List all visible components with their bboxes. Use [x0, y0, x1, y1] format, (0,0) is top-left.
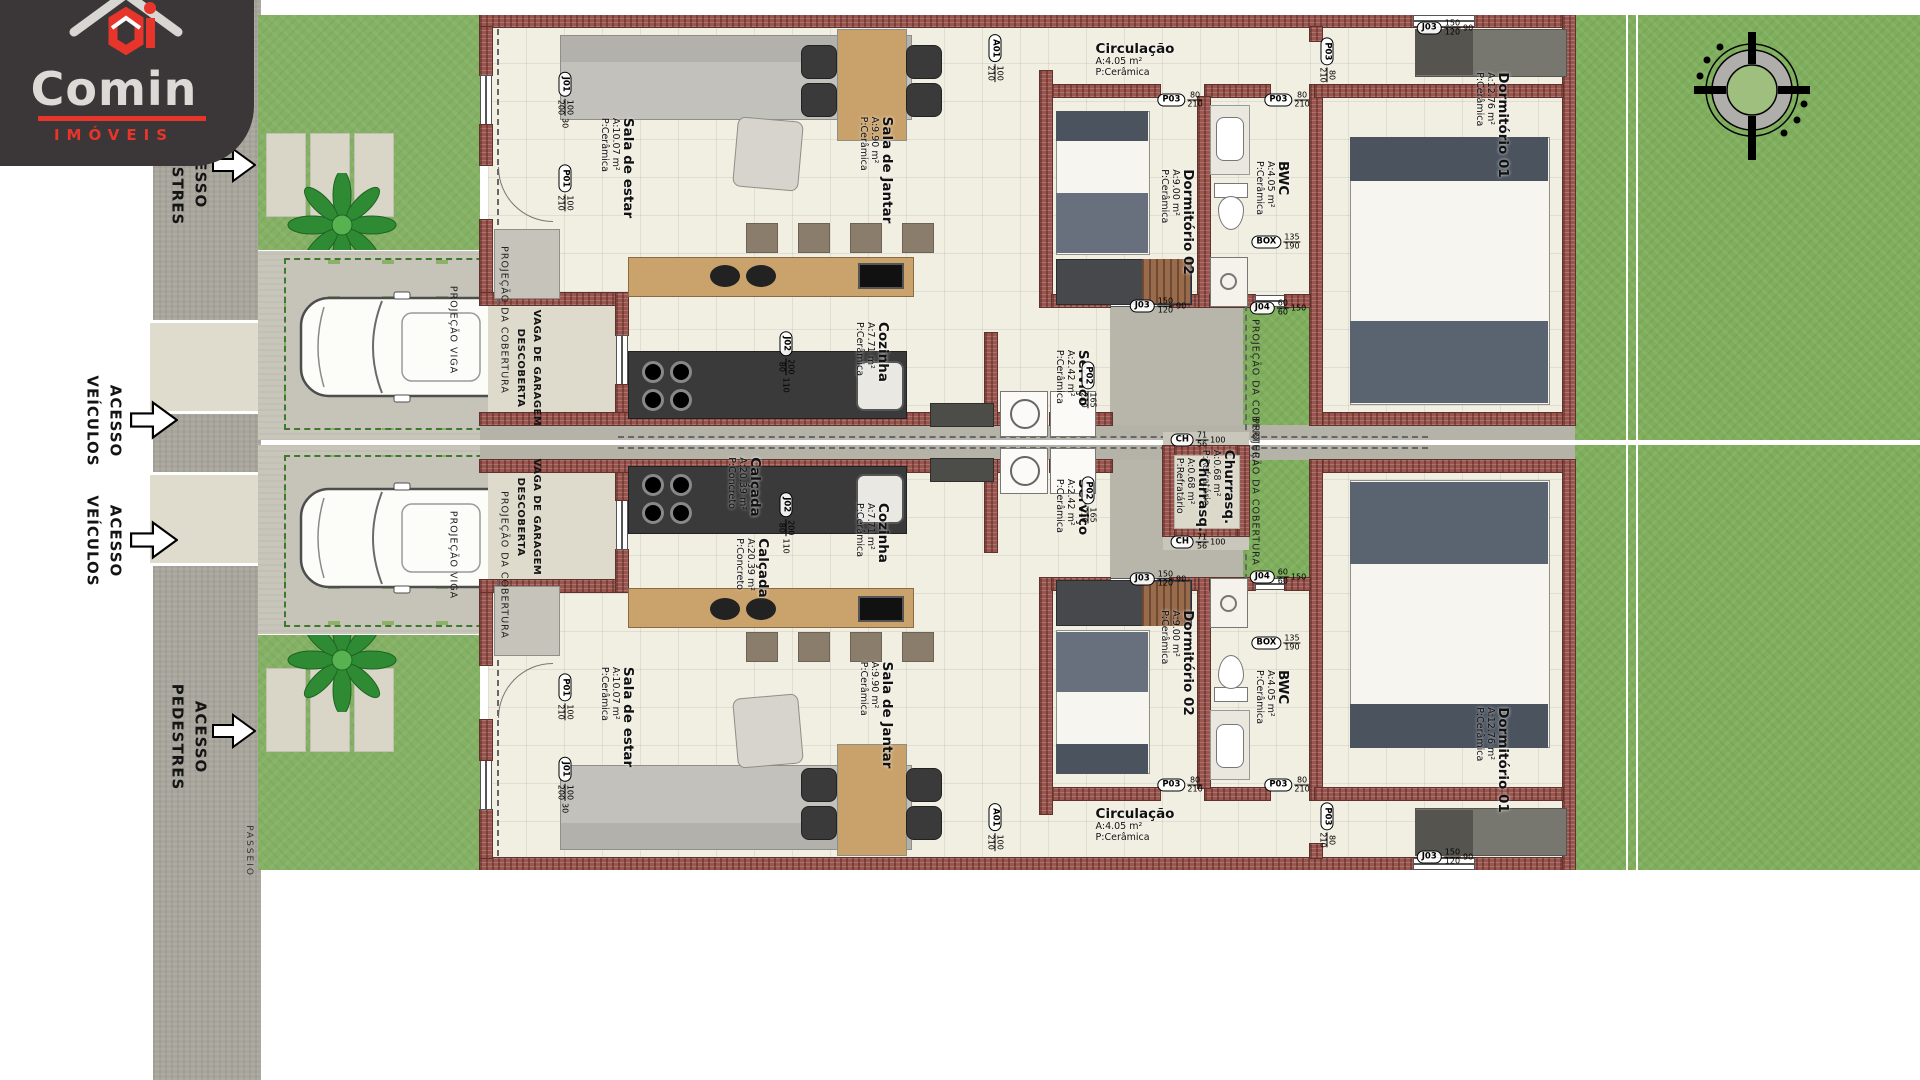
room-label-dormitorio-02-u1: Dormitório 02A:9.00 m²P:Cerâmica — [1159, 169, 1195, 275]
cooktop-burner — [670, 389, 692, 411]
wall — [1040, 71, 1052, 307]
window-j01 — [480, 760, 492, 810]
marker-j03-u2-21: J0315012090 — [1130, 571, 1186, 588]
marker-p03-u1-6: P0380210 — [1264, 92, 1309, 109]
label-vaga-garagem-2: VAGA DE GARAGEM DESCOBERTA — [512, 459, 544, 576]
wall — [1310, 460, 1575, 472]
marker-ch-u1-12: CH7156100 — [1171, 432, 1226, 449]
floor-plan-canvas: N Comin IMÓVEIS PASSEIOPASSEIOACESSO PED… — [0, 0, 1920, 1080]
room-label-calcada-u1: CalçadaA:20.39 m²P:Concreto — [726, 457, 762, 517]
wall — [480, 858, 1575, 870]
wall — [1205, 788, 1270, 800]
bathroom-sink — [1216, 724, 1244, 768]
bed-blanket — [1056, 193, 1148, 253]
marker-j04-u1-10: J046060150 — [1250, 300, 1306, 317]
wall — [1198, 578, 1210, 788]
armchair — [732, 693, 804, 768]
cooktop-burner — [670, 361, 692, 383]
cooktop-burner — [670, 502, 692, 524]
cooktop-burner — [670, 474, 692, 496]
window-j01 — [480, 75, 492, 125]
marker-box-u2-24: BOX135190 — [1251, 635, 1300, 652]
marker-p03-u2-20: P0380210 — [1319, 802, 1336, 847]
counter-sink — [710, 265, 740, 287]
marker-p01-u2-14: P01100210 — [557, 673, 574, 720]
bed-pillows — [1056, 111, 1148, 141]
bathroom-sink — [1216, 117, 1244, 161]
logo-house-icon — [0, 0, 254, 70]
label-projecao-cobertura-frente-2: PROJEÇÃO DA COBERTURA — [497, 491, 510, 639]
stool — [746, 632, 778, 662]
marker-j01-u1-0: J0110020030 — [557, 72, 574, 128]
marker-a01-u1-3: A01100210 — [987, 34, 1004, 82]
marker-box-u1-11: BOX135190 — [1251, 234, 1300, 251]
wall — [1315, 788, 1563, 800]
logo-underline — [38, 116, 206, 121]
dining-chair — [906, 45, 942, 79]
lot-boundary-line — [1626, 445, 1638, 870]
marker-j01-u2-13: J0110020030 — [557, 757, 574, 813]
marker-p03-u1-5: P0380210 — [1157, 92, 1202, 109]
counter-sink — [746, 598, 776, 620]
dining-chair — [906, 768, 942, 802]
room-label-sala-jantar-u2: Sala de JantarA:9.90 m²P:Cerâmica — [858, 662, 894, 769]
marker-ch-u2-25: CH7156100 — [1171, 534, 1226, 551]
cooktop-burner — [642, 389, 664, 411]
counter-appliance — [858, 263, 904, 289]
room-label-circulacao-u2: CirculaçãoA:4.05 m²P:Cerâmica — [1096, 807, 1175, 843]
dining-chair — [801, 83, 837, 117]
stool — [798, 223, 830, 253]
marker-j03-u1-9: J0315012090 — [1417, 20, 1473, 37]
arrow-right-icon — [212, 712, 256, 750]
north-compass-icon — [1692, 30, 1812, 180]
room-label-sala-estar-u1: Sala de estarA:10.07 m²P:Cerâmica — [599, 118, 635, 218]
wall — [1052, 788, 1160, 800]
wall — [480, 720, 492, 760]
covered-patio — [1100, 307, 1243, 440]
wall — [1310, 85, 1322, 425]
wall — [1315, 85, 1563, 97]
bed-blanket — [1350, 482, 1548, 564]
room-label-churrasqueira-u2: Churrasq.A:0.68 m²P:Refratário — [1174, 458, 1210, 532]
washer-drum — [1010, 456, 1040, 486]
wall — [480, 125, 492, 165]
marker-p03-u2-19: P0380210 — [1264, 777, 1309, 794]
stool — [850, 632, 882, 662]
wall — [480, 810, 492, 858]
toilet-tank — [1214, 687, 1248, 702]
bed-pillows — [1350, 137, 1548, 181]
marker-j02-u1-2: J0220080110 — [778, 331, 795, 393]
room-label-circulacao-u1: CirculaçãoA:4.05 m²P:Cerâmica — [1096, 42, 1175, 78]
armchair — [732, 116, 804, 191]
cooktop-burner — [642, 361, 664, 383]
label-acesso-veiculos-bottom: ACESSO VEÍCULOS — [82, 495, 127, 586]
logo-brand-text: Comin — [0, 66, 254, 112]
wall — [480, 15, 1575, 27]
wall — [480, 580, 492, 665]
room-label-dormitorio-01-u2: Dormitório 01A:12.76 m²P:Cerâmica — [1474, 707, 1510, 813]
stool — [798, 632, 830, 662]
stool — [746, 223, 778, 253]
label-projecao-cobertura-fundos-2: PROJEÇÃO DA COBERTURA — [1248, 418, 1261, 566]
grill-counter — [930, 458, 994, 482]
wall — [1040, 578, 1052, 814]
room-label-bwc-u2: BWCA:4.05 m²P:Cerâmica — [1254, 670, 1290, 724]
wall — [1310, 413, 1575, 425]
room-label-cozinha-u2: CozinhaA:7.71 m²P:Cerâmica — [854, 503, 890, 563]
bed-blanket — [1350, 321, 1548, 403]
stool — [850, 223, 882, 253]
dining-chair — [906, 806, 942, 840]
washer-drum — [1010, 399, 1040, 429]
wall — [1198, 97, 1210, 307]
window-j02 — [616, 500, 628, 550]
cooktop-burner — [642, 474, 664, 496]
shower-drain — [1220, 595, 1237, 612]
room-label-cozinha-u1: CozinhaA:7.71 m²P:Cerâmica — [854, 322, 890, 382]
label-projecao-viga-2: PROJEÇÃO VIGA — [446, 511, 459, 599]
shower-drain — [1220, 273, 1237, 290]
marker-j04-u2-23: J046060150 — [1250, 569, 1306, 586]
stool — [902, 223, 934, 253]
cooktop-burner — [642, 502, 664, 524]
room-label-calcada-u2: CalçadaA:20.39 m²P:Concreto — [734, 538, 770, 598]
room-label-dormitorio-01-u1: Dormitório 01A:12.76 m²P:Cerâmica — [1474, 72, 1510, 178]
dining-chair — [906, 83, 942, 117]
marker-p01-u1-1: P01100210 — [557, 164, 574, 211]
dining-chair — [801, 45, 837, 79]
marker-p03-u2-18: P0380210 — [1157, 777, 1202, 794]
room-label-bwc-u1: BWCA:4.05 m²P:Cerâmica — [1254, 161, 1290, 215]
counter-sink — [746, 265, 776, 287]
arrow-right-icon — [130, 398, 178, 442]
window-j02 — [616, 335, 628, 385]
label-vaga-garagem-1: VAGA DE GARAGEM DESCOBERTA — [512, 310, 544, 427]
wall — [1310, 460, 1322, 800]
bed-pillows — [1350, 704, 1548, 748]
logo-subtitle-text: IMÓVEIS — [0, 126, 254, 144]
label-acesso-pedestres-bottom: ACESSO PEDESTRES — [167, 684, 212, 791]
label-projecao-cobertura-frente-1: PROJEÇÃO DA COBERTURA — [497, 246, 510, 394]
toilet-bowl — [1218, 655, 1244, 689]
marker-p03-u1-7: P0380210 — [1319, 37, 1336, 82]
room-label-dormitorio-02-u2: Dormitório 02A:9.00 m²P:Cerâmica — [1159, 610, 1195, 716]
counter-appliance — [858, 596, 904, 622]
bed-pillows — [1056, 744, 1148, 774]
marker-p02-u2-17: P02165210 — [1080, 476, 1097, 523]
lot-boundary-line — [1626, 15, 1638, 440]
marker-j02-u2-15: J0220080110 — [778, 492, 795, 554]
wall — [480, 27, 492, 75]
arrow-right-icon — [130, 518, 178, 562]
stool — [902, 632, 934, 662]
wall — [1205, 85, 1270, 97]
marker-p02-u1-4: P02165210 — [1080, 361, 1097, 408]
label-projecao-viga-1: PROJEÇÃO VIGA — [446, 286, 459, 374]
bed-blanket — [1056, 632, 1148, 692]
logo-card: Comin IMÓVEIS — [0, 0, 254, 166]
dining-chair — [801, 806, 837, 840]
wall — [616, 293, 628, 335]
counter-sink — [710, 598, 740, 620]
room-label-sala-estar-u2: Sala de estarA:10.07 m²P:Cerâmica — [599, 667, 635, 767]
room-label-sala-jantar-u1: Sala de JantarA:9.90 m²P:Cerâmica — [858, 117, 894, 224]
grill-counter — [930, 403, 994, 427]
label-passeio-bottom: PASSEIO — [243, 825, 255, 877]
marker-j03-u2-22: J0315012090 — [1417, 849, 1473, 866]
wall — [1052, 85, 1160, 97]
wall — [616, 550, 628, 592]
marker-a01-u2-16: A01100210 — [987, 803, 1004, 851]
marker-j03-u1-8: J0315012090 — [1130, 298, 1186, 315]
label-acesso-veiculos-top: ACESSO VEÍCULOS — [82, 375, 127, 466]
dining-chair — [801, 768, 837, 802]
